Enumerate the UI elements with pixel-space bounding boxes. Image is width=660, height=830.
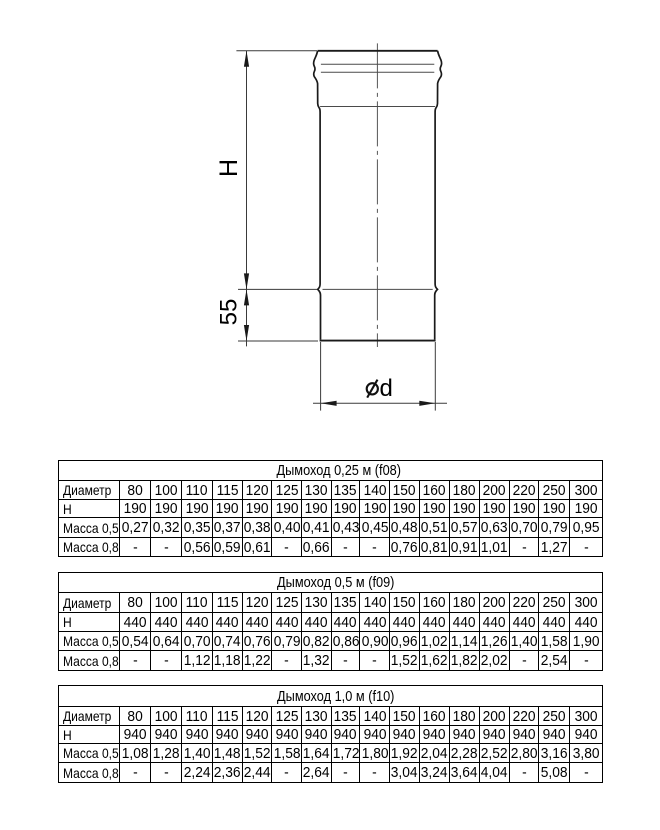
svg-text:d: d <box>380 375 393 402</box>
svg-text:55: 55 <box>216 299 243 326</box>
svg-text:H: H <box>215 159 243 177</box>
